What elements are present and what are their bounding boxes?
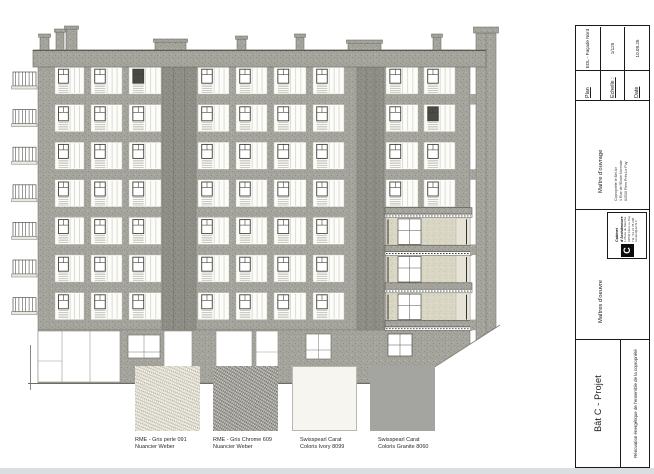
facade-graphics xyxy=(12,26,501,390)
title-block-moa-section: Maître d'ouvrage Copropriété le Bel Air … xyxy=(576,100,649,209)
echelle-label: Echelle : xyxy=(601,70,625,100)
owner-detail-line: 62530 Flers Près Le Puy xyxy=(624,160,629,201)
material-label-line2: Nuancier Weber xyxy=(213,444,288,451)
architect-logo: C xyxy=(621,244,634,257)
material-label-line1: RME - Gris Chrome 609 xyxy=(213,437,288,444)
scanned-drawing-sheet: RME - Gris perle 091 Nuancier Weber RME … xyxy=(0,0,654,474)
title-block-project-section: Bât C - Projet Rénovation énergétique de… xyxy=(576,339,649,467)
title-block: Bât C - Projet Rénovation énergétique de… xyxy=(575,25,650,468)
maitre-oeuvre-label: Maîtres d'oeuvre xyxy=(598,280,604,323)
material-swatch-swisspearl-granite xyxy=(370,366,435,431)
project-name: Bât C - Projet xyxy=(576,340,621,467)
echelle-value: 1/125 xyxy=(601,27,625,70)
scan-edge-strip xyxy=(0,468,654,474)
architect-detail-line: contact@archi.fr xyxy=(635,214,639,242)
title-block-moe-section: Maîtres d'oeuvre C Cabinet d'Architectur… xyxy=(576,209,649,339)
meta-row-plan: Plan EDL - Façade Nord xyxy=(576,27,601,100)
material-swatch-swisspearl-ivory xyxy=(292,366,357,431)
material-label-line2: Coloris Ivory 8099 xyxy=(300,444,367,451)
material-label-line1: Swisspearl Carat xyxy=(300,437,367,444)
material-label-line2: Nuancier Weber xyxy=(135,444,210,451)
architect-card: C Cabinet d'Architecture 1 Place du Marc… xyxy=(607,212,647,259)
maitre-ouvrage-label: Maître d'ouvrage xyxy=(598,150,604,193)
title-block-table: Bât C - Projet Rénovation énergétique de… xyxy=(575,25,650,468)
material-label-line2: Coloris Granite 8060 xyxy=(378,444,445,451)
title-block-meta-section: Plan EDL - Façade Nord Echelle : 1/125 D… xyxy=(576,27,649,100)
project-description: Rénovation énergétique de l'ensemble de … xyxy=(621,340,649,467)
plan-label: Plan xyxy=(576,70,600,100)
meta-row-echelle: Echelle : 1/125 xyxy=(601,27,626,100)
owner-detail-line: 1 Rue de l'École Normale xyxy=(619,160,624,201)
date-value: 10.08.25 xyxy=(625,27,649,70)
meta-row-date: Date 10.08.25 xyxy=(625,27,649,100)
material-sample-2: RME - Gris Chrome 609 Nuancier Weber xyxy=(213,366,288,451)
material-swatch-rme-gris-perle xyxy=(135,366,200,431)
material-sample-3: Swisspearl Carat Coloris Ivory 8099 xyxy=(292,366,367,451)
material-label-line1: Swisspearl Carat xyxy=(378,437,445,444)
material-label-line1: RME - Gris perle 091 xyxy=(135,437,210,444)
plan-value: EDL - Façade Nord xyxy=(576,27,600,70)
material-sample-1: RME - Gris perle 091 Nuancier Weber xyxy=(135,366,210,451)
material-sample-4: Swisspearl Carat Coloris Granite 8060 xyxy=(370,366,445,451)
date-label: Date xyxy=(625,70,649,100)
material-swatch-rme-gris-chrome xyxy=(213,366,278,431)
